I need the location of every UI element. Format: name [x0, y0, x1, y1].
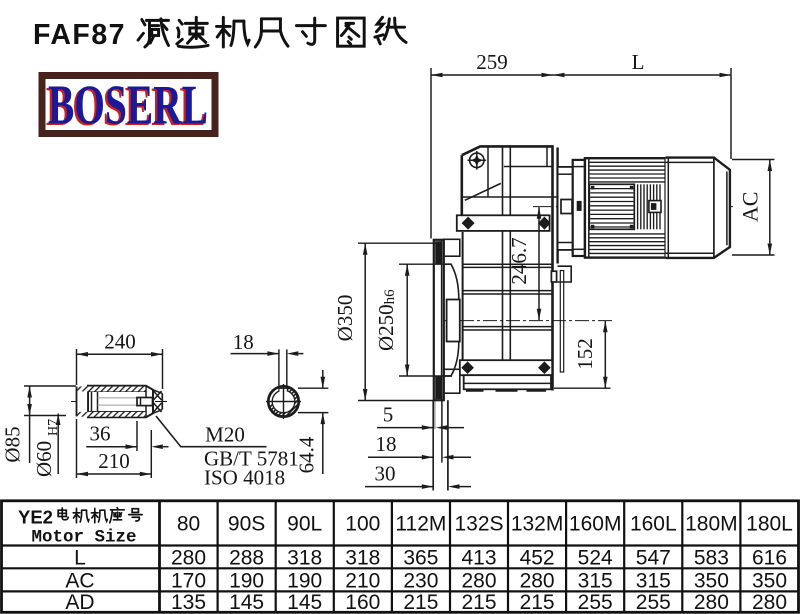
svg-text:Ø250h6: Ø250h6: [374, 289, 398, 351]
svg-text:135: 135: [171, 591, 206, 614]
svg-text:80: 80: [177, 513, 200, 536]
svg-text:BOSERL: BOSERL: [48, 75, 208, 137]
svg-text:YE2: YE2: [18, 507, 53, 528]
svg-text:L: L: [74, 547, 86, 570]
svg-text:145: 145: [287, 591, 322, 614]
svg-text:240: 240: [104, 329, 136, 353]
svg-text:145: 145: [229, 591, 264, 614]
svg-text:230: 230: [403, 570, 438, 593]
svg-text:547: 547: [636, 547, 671, 570]
svg-text:259: 259: [476, 50, 508, 74]
svg-text:280: 280: [752, 591, 787, 614]
svg-text:180M: 180M: [685, 513, 738, 536]
svg-text:318: 318: [287, 547, 322, 570]
svg-text:H7: H7: [46, 419, 61, 436]
svg-text:132S: 132S: [454, 513, 503, 536]
svg-text:AD: AD: [65, 591, 94, 614]
svg-text:210: 210: [345, 570, 380, 593]
svg-text:L: L: [632, 50, 645, 74]
svg-text:583: 583: [694, 547, 729, 570]
svg-text:315: 315: [636, 570, 671, 593]
svg-text:30: 30: [375, 462, 396, 486]
svg-text:112M: 112M: [395, 513, 446, 536]
svg-text:190: 190: [287, 570, 322, 593]
svg-text:280: 280: [520, 570, 555, 593]
svg-text:280: 280: [461, 570, 496, 593]
svg-text:160L: 160L: [630, 513, 677, 536]
svg-text:365: 365: [403, 547, 438, 570]
svg-text:280: 280: [694, 591, 729, 614]
svg-text:315: 315: [578, 570, 613, 593]
svg-text:90S: 90S: [228, 513, 265, 536]
svg-text:215: 215: [403, 591, 438, 614]
svg-text:152: 152: [573, 338, 597, 370]
svg-text:Ø85: Ø85: [1, 426, 25, 462]
svg-text:160M: 160M: [569, 513, 622, 536]
svg-text:452: 452: [520, 547, 555, 570]
svg-text:288: 288: [229, 547, 264, 570]
svg-text:255: 255: [578, 591, 613, 614]
svg-text:Ø60: Ø60: [32, 441, 56, 477]
svg-text:160: 160: [345, 591, 380, 614]
svg-text:318: 318: [345, 547, 380, 570]
svg-text:Motor Size: Motor Size: [31, 528, 136, 548]
svg-text:Ø350: Ø350: [333, 295, 357, 342]
svg-text:AC: AC: [65, 570, 94, 593]
svg-text:36: 36: [90, 422, 111, 446]
svg-text:413: 413: [461, 547, 496, 570]
svg-text:FAF87: FAF87: [33, 19, 126, 51]
svg-text:M20: M20: [205, 422, 245, 446]
svg-text:64.4: 64.4: [295, 436, 319, 473]
svg-text:215: 215: [520, 591, 555, 614]
svg-text:5: 5: [383, 403, 394, 427]
svg-text:18: 18: [233, 330, 254, 354]
svg-text:350: 350: [752, 570, 787, 593]
svg-text:524: 524: [578, 547, 613, 570]
svg-text:18: 18: [376, 432, 397, 456]
svg-text:90L: 90L: [287, 513, 322, 536]
svg-text:215: 215: [461, 591, 496, 614]
svg-text:AC: AC: [738, 192, 763, 223]
svg-text:280: 280: [171, 547, 206, 570]
svg-text:100: 100: [345, 513, 380, 536]
svg-text:350: 350: [694, 570, 729, 593]
svg-text:190: 190: [229, 570, 264, 593]
svg-text:132M: 132M: [511, 513, 564, 536]
svg-text:255: 255: [636, 591, 671, 614]
svg-text:210: 210: [98, 449, 130, 473]
svg-text:180L: 180L: [746, 513, 793, 536]
svg-text:ISO 4018: ISO 4018: [204, 466, 285, 490]
svg-text:616: 616: [752, 547, 787, 570]
svg-text:170: 170: [171, 570, 206, 593]
svg-text:246.7: 246.7: [507, 237, 531, 284]
